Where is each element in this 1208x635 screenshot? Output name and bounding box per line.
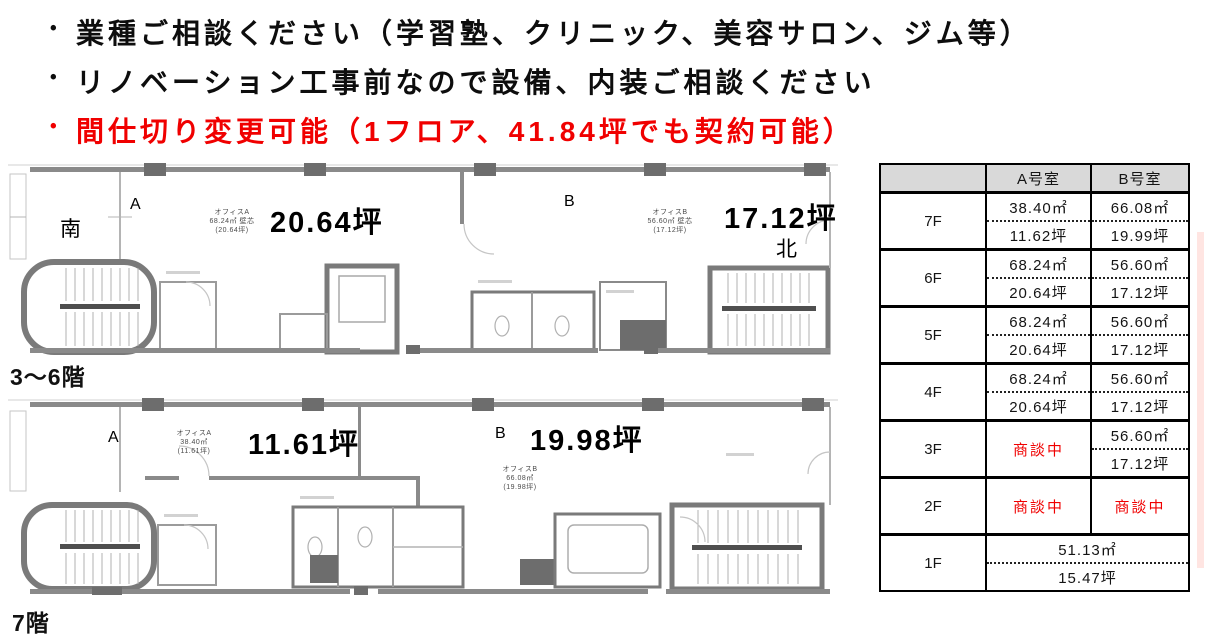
stairs-right [672,505,822,589]
toilet-rooms [293,496,463,587]
floor-area-table: A号室 B号室 7F 38.40㎡ 11.62坪 66.08㎡ 19.99坪 6… [879,163,1190,592]
area-m2: 51.13㎡ [987,536,1188,564]
status-under-negotiation: 商談中 [1090,479,1188,533]
plan-lower-caption: 7階 [12,604,50,635]
bullet-partition: 間仕切り変更可能（1フロア、41.84坪でも契約可能） [50,110,855,150]
floor-label: 3F [881,422,985,476]
table-row-1f: 1F 51.13㎡ 15.47坪 [881,533,1188,590]
area-tsubo: 17.12坪 [1092,450,1188,476]
scan-artifact-strip [1197,232,1204,568]
annex-room [280,314,327,352]
area-m2: 68.24㎡ [987,308,1090,336]
plan-upper-caption: 3～6階 [10,358,86,392]
table-row-2f: 2F 商談中 商談中 [881,476,1188,533]
svg-text:66.08㎡: 66.08㎡ [506,474,534,482]
area-m2: 56.60㎡ [1092,251,1188,279]
area-m2: 56.60㎡ [1092,308,1188,336]
table-row-4f: 4F 68.24㎡ 20.64坪 56.60㎡ 17.12坪 [881,362,1188,419]
area-m2: 68.24㎡ [987,251,1090,279]
area-tsubo: 17.12坪 [1092,336,1188,362]
svg-text:オフィスA: オフィスA [176,429,211,437]
svg-text:(19.98坪): (19.98坪) [503,483,536,491]
header-room-a: A号室 [985,165,1090,191]
table-header-row: A号室 B号室 [881,165,1188,191]
stairs-right [710,268,828,352]
floor-plan-lower: A 11.61坪 オフィスA 38.40㎡ (11.61坪) B 19.98坪 … [8,397,838,601]
utility-block [600,282,666,350]
area-m2: 68.24㎡ [987,365,1090,393]
table-row-5f: 5F 68.24㎡ 20.64坪 56.60㎡ 17.12坪 [881,305,1188,362]
unit-a-label: A [108,429,119,446]
unit-a-area: 20.64坪 [270,206,384,239]
direction-south-label: 南 [60,218,81,241]
floor-label: 2F [881,479,985,533]
toilet-rooms [472,280,594,350]
bath-room [555,514,660,587]
area-m2: 56.60㎡ [1092,422,1188,450]
svg-text:(20.64坪): (20.64坪) [215,226,248,234]
floor-label: 4F [881,365,985,419]
status-under-negotiation: 商談中 [985,422,1090,476]
area-tsubo: 20.64坪 [987,279,1090,305]
floor-label: 1F [881,536,985,590]
area-tsubo: 15.47坪 [987,564,1188,590]
small-room-left [160,271,216,350]
header-floor [881,165,985,191]
office-b-note: オフィスB 66.08㎡ (19.98坪) [502,465,537,491]
unit-a-area: 11.61坪 [248,428,360,461]
svg-text:オフィスB: オフィスB [502,465,537,473]
floor-label: 6F [881,251,985,305]
svg-text:68.24㎡ 壁芯: 68.24㎡ 壁芯 [210,216,255,225]
header-room-b: B号室 [1090,165,1188,191]
balcony-outline [10,411,26,491]
unit-b-area: 17.12坪 [724,202,838,235]
floor-label: 7F [881,194,985,248]
svg-text:(11.61坪): (11.61坪) [178,447,211,455]
area-tsubo: 17.12坪 [1092,393,1188,419]
area-m2: 66.08㎡ [1092,194,1188,222]
area-tsubo: 19.99坪 [1092,222,1188,248]
area-tsubo: 17.12坪 [1092,279,1188,305]
office-a-note: オフィスA 68.24㎡ 壁芯 (20.64坪) [210,208,255,234]
elevator [327,266,397,352]
area-m2: 38.40㎡ [987,194,1090,222]
table-row-3f: 3F 商談中 56.60㎡ 17.12坪 [881,419,1188,476]
svg-text:56.60㎡ 壁芯: 56.60㎡ 壁芯 [648,216,693,225]
svg-text:オフィスA: オフィスA [214,208,249,216]
svg-text:オフィスB: オフィスB [652,208,687,216]
area-tsubo: 11.62坪 [987,222,1090,248]
pipe-shaft [520,559,554,585]
table-row-6f: 6F 68.24㎡ 20.64坪 56.60㎡ 17.12坪 [881,248,1188,305]
bullet-renovation: リノベーション工事前なので設備、内装ご相談ください [50,61,875,101]
office-b-note: オフィスB 56.60㎡ 壁芯 (17.12坪) [648,208,693,234]
area-tsubo: 20.64坪 [987,336,1090,362]
small-room-left [158,514,216,585]
unit-b-area: 19.98坪 [530,424,644,457]
unit-b-label: B [495,425,506,442]
bullet-business-types: 業種ご相談ください（学習塾、クリニック、美容サロン、ジム等） [50,12,1032,52]
stairs-left [24,262,154,352]
unit-a-label: A [130,196,141,213]
unit-b-label: B [564,193,575,210]
flyer-page: 業種ご相談ください（学習塾、クリニック、美容サロン、ジム等） リノベーション工事… [0,0,1208,635]
stairs-left [24,505,154,589]
unit-divider [460,172,494,254]
svg-text:38.40㎡: 38.40㎡ [180,438,208,446]
office-a-note: オフィスA 38.40㎡ (11.61坪) [176,429,211,455]
status-under-negotiation: 商談中 [985,479,1090,533]
area-tsubo: 20.64坪 [987,393,1090,419]
area-m2: 56.60㎡ [1092,365,1188,393]
table-row-7f: 7F 38.40㎡ 11.62坪 66.08㎡ 19.99坪 [881,191,1188,248]
svg-text:(17.12坪): (17.12坪) [653,226,686,234]
floor-label: 5F [881,308,985,362]
direction-north-label: 北 [776,238,797,261]
floor-plan-upper: 南 A 20.64坪 オフィスA 68.24㎡ 壁芯 (20.64坪) B 17… [8,162,838,360]
